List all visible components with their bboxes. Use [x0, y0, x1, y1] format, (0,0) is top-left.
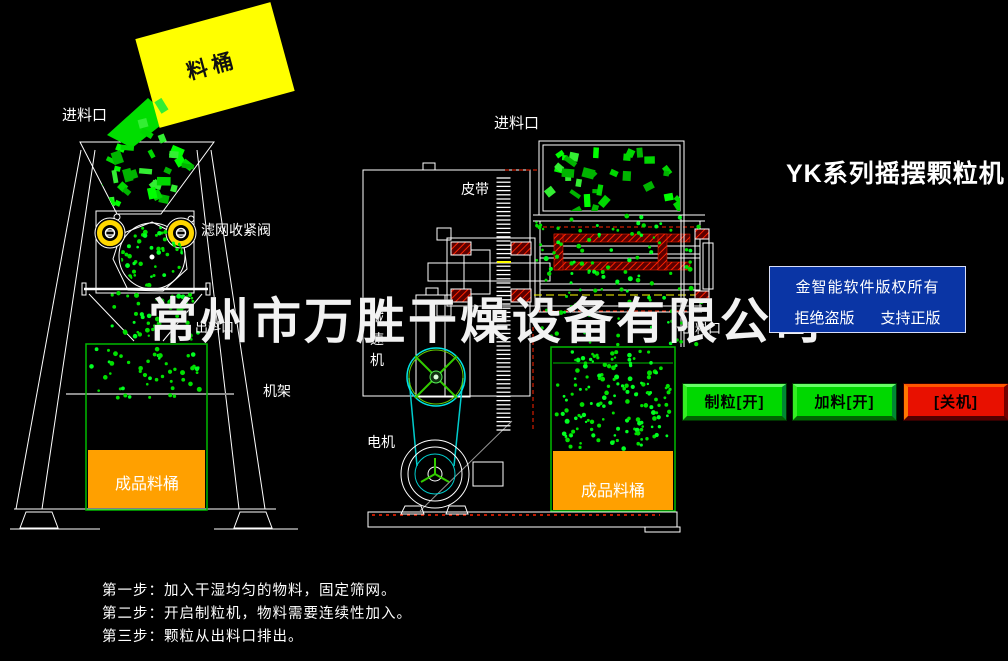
- page-title: YK系列摇摆颗粒机: [786, 154, 1005, 190]
- anti-piracy-text: 拒绝盗版: [794, 307, 854, 328]
- particles-left-container: [89, 347, 202, 400]
- left-product-bucket-label: 成品料桶: [92, 470, 202, 494]
- right-product-bucket-label: 成品料桶: [556, 477, 670, 501]
- motor-label: 电机: [367, 432, 395, 452]
- filter-valve-label: 滤网收紧阀: [201, 220, 271, 240]
- particles-middle-container: [555, 350, 672, 451]
- support-genuine-text: 支持正版: [881, 307, 941, 328]
- frame-label: 机架: [263, 381, 291, 401]
- copyright-line1: 金智能软件版权所有: [770, 276, 965, 297]
- pulley-and-motor: [401, 348, 469, 514]
- instruction-step-2: 第二步：开启制粒机，物料需要连续性加入。: [102, 602, 412, 623]
- watermark: 常州市万胜干燥设备有限公司: [148, 282, 824, 353]
- left-inlet-label: 进料口: [62, 104, 107, 125]
- right-inlet-label: 进料口: [494, 112, 539, 133]
- shutdown-button[interactable]: [关机]: [904, 384, 1008, 420]
- granulator-hmi-screen: { "title": "YK系列摇摆颗粒机", "watermark": "常州…: [0, 0, 1008, 656]
- copyright-box: 金智能软件版权所有 拒绝盗版 支持正版: [769, 266, 966, 333]
- left-hopper: [80, 142, 214, 214]
- instruction-step-3: 第三步：颗粒从出料口排出。: [102, 625, 304, 646]
- feed-on-button[interactable]: 加料[开]: [793, 384, 896, 420]
- particles-middle-hopper: [544, 147, 687, 218]
- belt-label: 皮带: [461, 179, 489, 199]
- granulate-on-button[interactable]: 制粒[开]: [683, 384, 786, 420]
- instruction-step-1: 第一步：加入干湿均匀的物料，固定筛网。: [102, 579, 397, 600]
